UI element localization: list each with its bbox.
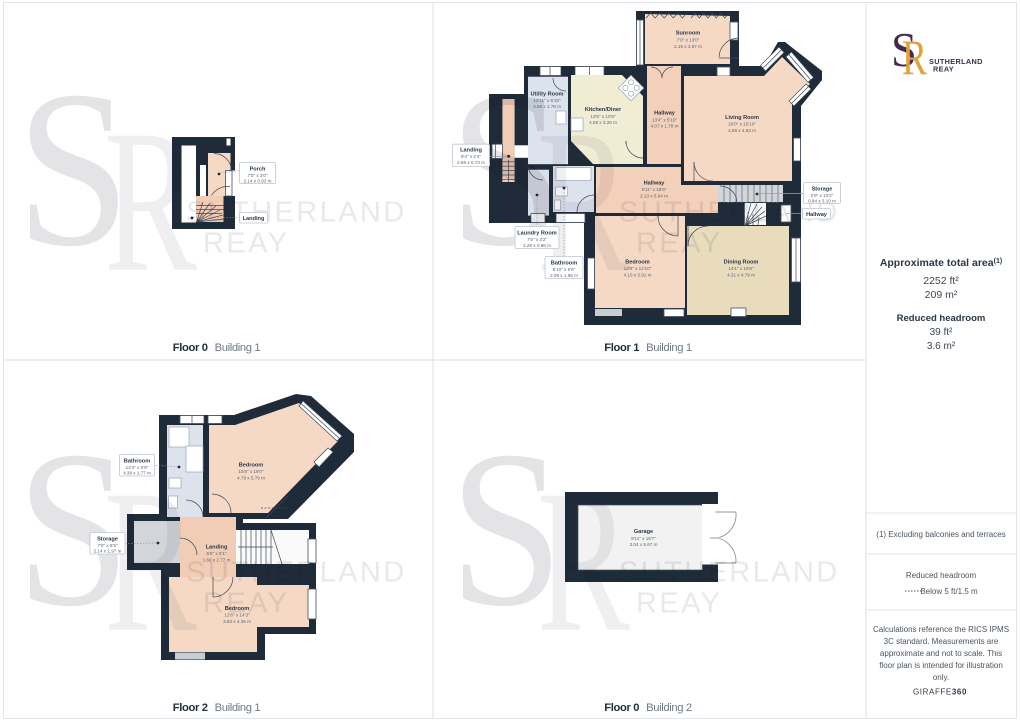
svg-text:14'4" x 5'9": 14'4" x 5'9" (126, 465, 149, 470)
svg-text:4.07 x 1.78 m: 4.07 x 1.78 m (651, 124, 679, 129)
svg-text:12'6" x 14'3": 12'6" x 14'3" (224, 612, 250, 617)
svg-text:Calculations reference the RIC: Calculations reference the RICS IPMS (873, 625, 1009, 634)
svg-text:Landing: Landing (243, 216, 265, 222)
svg-text:Reduced headroom: Reduced headroom (906, 571, 977, 580)
svg-text:(1) Excluding balconies and te: (1) Excluding balconies and terraces (876, 530, 1005, 539)
svg-text:Floor 0Building 1: Floor 0Building 1 (173, 342, 261, 354)
svg-text:1.69 x 2.77 m: 1.69 x 2.77 m (203, 557, 231, 562)
svg-text:3.04 x 5.67 m: 3.04 x 5.67 m (630, 542, 658, 547)
svg-text:12'11" x 5'10": 12'11" x 5'10" (533, 98, 561, 103)
svg-text:Bedroom: Bedroom (239, 462, 264, 468)
svg-text:Garage: Garage (634, 529, 653, 535)
svg-text:Storage: Storage (812, 187, 833, 193)
svg-text:9'11" x 18'7": 9'11" x 18'7" (631, 536, 656, 541)
svg-text:4.31 x 4.79 m: 4.31 x 4.79 m (727, 273, 755, 278)
svg-text:R: R (902, 30, 927, 85)
svg-text:Kitchen/Diner: Kitchen/Diner (585, 107, 622, 113)
svg-text:Sunroom: Sunroom (676, 31, 701, 37)
svg-text:7'5" x 3'2": 7'5" x 3'2" (527, 237, 547, 242)
svg-text:2252 ft²: 2252 ft² (923, 275, 959, 287)
svg-text:Floor 2Building 1: Floor 2Building 1 (173, 702, 261, 714)
svg-text:4.88 x 4.83 m: 4.88 x 4.83 m (728, 128, 756, 133)
svg-text:14'1" x 15'8": 14'1" x 15'8" (728, 266, 754, 271)
svg-text:4.19 x 3.91 m: 4.19 x 3.91 m (624, 273, 652, 278)
svg-text:15'8" x 19'0": 15'8" x 19'0" (238, 469, 264, 474)
svg-text:Landing: Landing (460, 147, 482, 153)
svg-text:4.09 x 3.28 m: 4.09 x 3.28 m (589, 120, 617, 125)
svg-text:Utility Room: Utility Room (531, 91, 564, 97)
svg-text:4.79 x 5.79 m: 4.79 x 5.79 m (237, 475, 265, 480)
svg-text:Hallway: Hallway (644, 181, 666, 187)
svg-text:7'0" x 13'0": 7'0" x 13'0" (677, 38, 700, 43)
svg-text:13'4" x 5'10": 13'4" x 5'10" (652, 117, 678, 122)
svg-text:7'0" x 6'5": 7'0" x 6'5" (97, 543, 117, 548)
svg-text:GIRAFFE360: GIRAFFE360 (913, 688, 967, 697)
svg-text:Storage: Storage (97, 537, 118, 543)
svg-text:REAY: REAY (933, 65, 954, 74)
svg-text:Laundry Room: Laundry Room (517, 231, 556, 237)
svg-text:4.39 x 1.77 m: 4.39 x 1.77 m (123, 471, 151, 476)
svg-text:5'6" x 9'1": 5'6" x 9'1" (206, 551, 226, 556)
svg-text:3C standard. Measurements are: 3C standard. Measurements are (884, 637, 999, 646)
svg-text:Hallway: Hallway (806, 212, 828, 218)
svg-text:approximate and not to scale.: approximate and not to scale. This (880, 649, 1002, 658)
svg-text:Bathroom: Bathroom (551, 261, 577, 267)
svg-text:209 m²: 209 m² (925, 289, 958, 301)
svg-text:16'0" x 15'10": 16'0" x 15'10" (728, 122, 756, 127)
svg-text:2.86 x 0.73 m: 2.86 x 0.73 m (457, 160, 485, 165)
svg-text:Bedroom: Bedroom (625, 260, 650, 266)
svg-text:3.83 x 4.36 m: 3.83 x 4.36 m (223, 619, 251, 624)
svg-text:13'5" x 10'9": 13'5" x 10'9" (590, 114, 616, 119)
svg-text:3.56 x 1.79 m: 3.56 x 1.79 m (533, 104, 561, 109)
svg-text:2.09 x 1.68 m: 2.09 x 1.68 m (550, 273, 578, 278)
svg-text:Reduced headroom: Reduced headroom (897, 313, 986, 324)
svg-text:2.13 x 5.64 m: 2.13 x 5.64 m (640, 194, 668, 199)
svg-text:2.15 x 3.97 m: 2.15 x 3.97 m (674, 44, 702, 49)
svg-text:2.14 x 0.93 m: 2.14 x 0.93 m (244, 179, 272, 184)
svg-text:floor plan is intended for ill: floor plan is intended for illustration (879, 661, 1003, 670)
svg-text:Living Room: Living Room (725, 115, 759, 121)
svg-text:Porch: Porch (250, 167, 266, 173)
svg-text:0.84 x 3.10 m: 0.84 x 3.10 m (808, 199, 836, 204)
svg-text:Approximate total area(1): Approximate total area(1) (880, 257, 1002, 269)
svg-text:Floor 0Building 2: Floor 0Building 2 (604, 702, 692, 714)
svg-text:Floor 1Building 1: Floor 1Building 1 (604, 342, 692, 354)
svg-text:6'11" x 18'6": 6'11" x 18'6" (642, 187, 667, 192)
svg-text:2.14 x 1.97 m: 2.14 x 1.97 m (94, 549, 122, 554)
svg-text:Dining Room: Dining Room (724, 260, 759, 266)
svg-text:Bedroom: Bedroom (225, 606, 250, 612)
svg-text:39 ft²: 39 ft² (930, 327, 953, 338)
svg-text:3.6 m²: 3.6 m² (927, 341, 956, 352)
svg-text:13'9" x 12'10": 13'9" x 12'10" (624, 266, 652, 271)
svg-text:Below 5 ft/1.5 m: Below 5 ft/1.5 m (920, 587, 978, 596)
svg-text:6'10" x 5'6": 6'10" x 5'6" (553, 267, 576, 272)
svg-text:only.: only. (933, 673, 949, 682)
svg-text:2.28 x 0.98 m: 2.28 x 0.98 m (523, 243, 551, 248)
svg-text:2'9" x 10'2": 2'9" x 10'2" (811, 193, 834, 198)
svg-text:Hallway: Hallway (654, 111, 676, 117)
svg-text:Landing: Landing (206, 544, 228, 550)
svg-text:7'0" x 3'0": 7'0" x 3'0" (247, 173, 267, 178)
svg-text:9'4" x 2'4": 9'4" x 2'4" (461, 154, 481, 159)
svg-text:Bathroom: Bathroom (124, 459, 150, 465)
